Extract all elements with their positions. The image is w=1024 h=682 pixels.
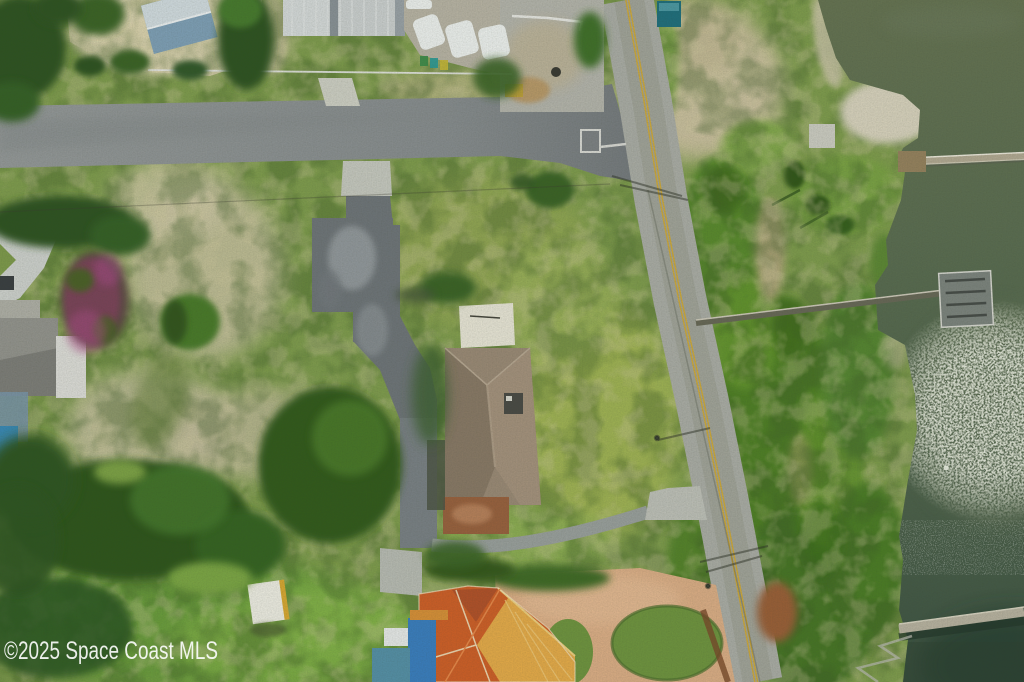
svg-text:©2025 Space Coast MLS: ©2025 Space Coast MLS [4, 637, 218, 665]
